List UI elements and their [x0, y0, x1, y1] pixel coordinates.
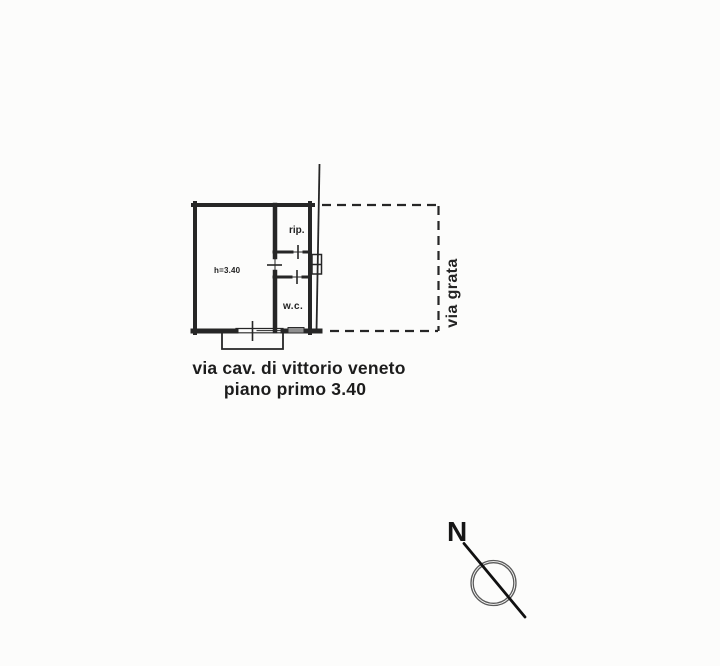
street-label-via-grata: via grata: [444, 258, 462, 327]
caption-floor-info: piano primo 3.40: [224, 379, 366, 400]
interior-walls: [274, 205, 308, 331]
north-arrow: [464, 544, 525, 618]
caption-street-name: via cav. di vittorio veneto: [192, 358, 405, 379]
courtyard-dashed-outline: [322, 205, 439, 331]
boundary-line: [317, 164, 320, 332]
north-label: N: [447, 516, 467, 548]
wc-room-label: w.c.: [283, 301, 303, 312]
scanned-floorplan-page: h=3.40 rip. w.c. via grata via cav. di v…: [0, 0, 720, 666]
window-sill: [288, 328, 304, 334]
building-outline: [193, 203, 320, 333]
floorplan-drawing: [0, 0, 720, 666]
storage-room-label: rip.: [289, 225, 305, 236]
room-height-label: h=3.40: [214, 266, 240, 275]
